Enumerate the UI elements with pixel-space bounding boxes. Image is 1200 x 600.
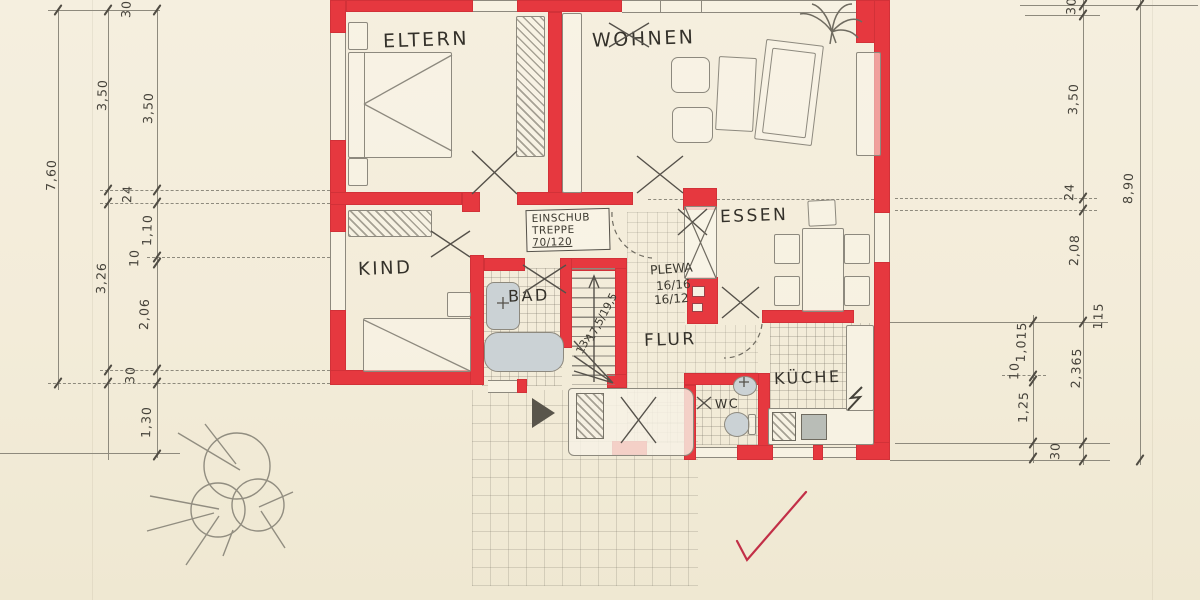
dining-chair bbox=[807, 199, 836, 226]
dim-label: 1,25 bbox=[1015, 391, 1031, 423]
chimney-brand: PLEWA bbox=[650, 260, 694, 278]
chimney-flue bbox=[692, 286, 705, 297]
dim-label: 1,015 bbox=[1013, 321, 1029, 362]
dim-label: 1,10 bbox=[139, 214, 155, 246]
wall-segment bbox=[615, 268, 627, 376]
red-check-mark bbox=[737, 492, 806, 560]
wardrobe bbox=[516, 16, 545, 157]
extension-line bbox=[48, 10, 160, 11]
kitchen-sink bbox=[772, 412, 796, 441]
wall-segment bbox=[517, 0, 622, 12]
bed-headboard-line bbox=[364, 53, 365, 157]
toilet-tank bbox=[748, 414, 756, 435]
window bbox=[823, 447, 856, 458]
extension-line bbox=[1025, 15, 1100, 16]
single-bed bbox=[363, 318, 471, 372]
dim-label: 2,08 bbox=[1066, 234, 1082, 266]
site-line bbox=[0, 453, 180, 454]
chimney-dim: 16/12 bbox=[654, 291, 689, 307]
dimension-line bbox=[1140, 0, 1141, 465]
extension-line bbox=[895, 210, 1097, 211]
doormat bbox=[576, 393, 604, 439]
room-label-kueche: KÜCHE bbox=[774, 367, 842, 388]
wall-segment bbox=[560, 258, 572, 348]
nightstand bbox=[447, 292, 471, 317]
nightstand bbox=[348, 158, 368, 186]
wall-segment bbox=[330, 370, 482, 385]
dim-label: 3,50 bbox=[1065, 83, 1081, 115]
dimension-line bbox=[58, 8, 59, 390]
window-band bbox=[622, 0, 856, 13]
wall-segment bbox=[517, 379, 527, 393]
note-line: 70/120 bbox=[532, 235, 604, 249]
window bbox=[330, 33, 346, 140]
chimney-flue bbox=[692, 303, 703, 312]
dim-label: 10 bbox=[126, 249, 142, 267]
window bbox=[330, 232, 346, 310]
dim-label: 10 bbox=[1006, 362, 1022, 380]
extension-line bbox=[895, 443, 1110, 444]
scan-fold-line bbox=[1152, 0, 1153, 600]
extension-line bbox=[147, 257, 330, 258]
shelf bbox=[348, 210, 432, 237]
wall-segment bbox=[330, 192, 462, 205]
dim-label-total: 8,90 bbox=[1120, 172, 1136, 204]
garden-tree bbox=[147, 424, 293, 565]
dim-label: 30 bbox=[122, 366, 138, 384]
wall-segment bbox=[874, 262, 890, 460]
room-label-essen: ESSEN bbox=[720, 205, 789, 227]
room-label-eltern: ELTERN bbox=[383, 28, 470, 53]
window bbox=[773, 447, 813, 458]
dimension-line bbox=[1083, 0, 1084, 465]
extension-line bbox=[100, 203, 330, 204]
dimension-line bbox=[157, 8, 158, 458]
dim-label: 3,50 bbox=[94, 79, 110, 111]
wall-segment bbox=[330, 0, 346, 33]
dim-label: 2,365 bbox=[1068, 347, 1084, 388]
wall-segment bbox=[462, 192, 480, 212]
extension-line bbox=[890, 460, 1110, 461]
wall-segment bbox=[737, 445, 773, 460]
dining-table bbox=[802, 228, 844, 312]
dim-label: 3,26 bbox=[93, 262, 109, 294]
nightstand bbox=[348, 22, 368, 50]
wall-segment bbox=[517, 192, 633, 205]
bathtub bbox=[484, 332, 564, 372]
wall-segment bbox=[470, 255, 484, 385]
sideboard bbox=[856, 52, 881, 156]
extension-line bbox=[890, 322, 1108, 323]
armchair bbox=[672, 107, 713, 143]
dim-label: 30 bbox=[118, 0, 134, 18]
dim-label: 1,30 bbox=[138, 406, 154, 438]
wall-segment bbox=[330, 140, 346, 232]
dim-label-total: 7,60 bbox=[43, 159, 59, 191]
wall-segment bbox=[813, 445, 823, 460]
opening-dashed-line bbox=[648, 199, 683, 200]
room-label-flur: FLUR bbox=[644, 329, 697, 351]
dim-label: 115 bbox=[1090, 302, 1106, 329]
opening-dashed-line bbox=[717, 199, 874, 200]
extension-line bbox=[1020, 5, 1198, 6]
door-swing-triangle bbox=[532, 398, 555, 428]
stove bbox=[801, 414, 827, 440]
stair-insert-note: EINSCHUB TREPPE 70/120 bbox=[525, 208, 610, 252]
wall-segment bbox=[548, 12, 562, 193]
window bbox=[488, 380, 517, 393]
scan-fold-line bbox=[92, 0, 93, 600]
room-label-bad: BAD bbox=[508, 285, 550, 305]
dining-chair bbox=[774, 234, 800, 264]
extension-line bbox=[48, 383, 330, 384]
dining-chair bbox=[844, 234, 870, 264]
room-label-wohnen: WOHNEN bbox=[592, 26, 696, 52]
wall-chase bbox=[562, 13, 582, 193]
wc-sink bbox=[733, 376, 757, 396]
dim-label: 2,06 bbox=[136, 298, 152, 330]
wall-segment bbox=[484, 258, 525, 271]
dim-label: 30 bbox=[1063, 0, 1079, 15]
dim-tick bbox=[152, 449, 161, 461]
room-label-kind: KIND bbox=[358, 257, 413, 280]
dim-label: 24 bbox=[1061, 183, 1077, 201]
dining-chair bbox=[774, 276, 800, 306]
dim-label: 24 bbox=[119, 185, 135, 203]
dim-label: 30 bbox=[1047, 442, 1063, 460]
dim-label: 3,50 bbox=[140, 92, 156, 124]
window-mullion bbox=[660, 0, 702, 13]
room-label-wc: WC bbox=[715, 396, 740, 412]
window bbox=[696, 447, 737, 458]
toilet-bowl bbox=[724, 412, 750, 437]
window bbox=[473, 0, 517, 12]
floor-plan-scan: ELTERN WOHNEN KIND BAD ESSEN FLUR WC KÜC… bbox=[0, 0, 1200, 600]
armchair bbox=[671, 57, 710, 93]
coffee-table bbox=[715, 56, 757, 132]
chimney-base bbox=[687, 277, 718, 324]
window bbox=[874, 213, 890, 262]
tall-cupboard bbox=[846, 325, 874, 411]
dining-chair bbox=[844, 276, 870, 306]
wall-segment bbox=[346, 0, 473, 12]
dimension-line bbox=[108, 8, 109, 460]
